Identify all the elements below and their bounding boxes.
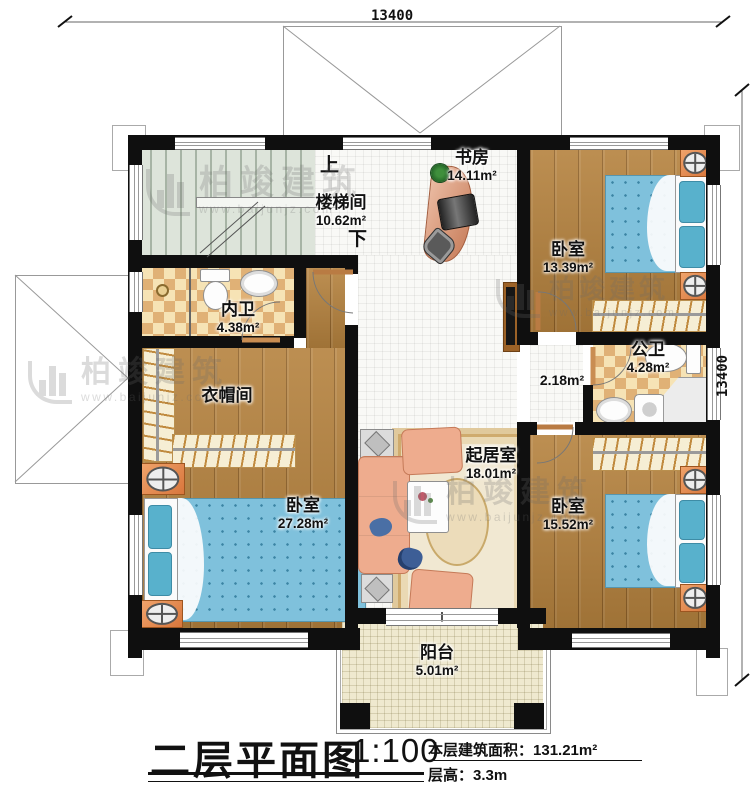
window <box>129 515 143 595</box>
closet-rack-icon <box>143 348 175 462</box>
pillow-icon <box>148 552 172 596</box>
room-area: 27.28m² <box>255 516 351 532</box>
room-name: 公卫 <box>600 340 696 360</box>
room-label-bedroom-tr: 卧室 13.39m² <box>520 240 616 275</box>
balcony-post <box>340 703 370 729</box>
wall-bedroom-tr <box>517 332 538 345</box>
room-name: 卧室 <box>255 496 351 516</box>
room-area: 2.18m² <box>524 372 600 388</box>
tv-icon <box>506 287 515 345</box>
floor-area-value: 131.21m² <box>533 742 597 759</box>
roof-gable-top <box>283 26 562 136</box>
sliding-door <box>386 608 498 626</box>
floor-height-value: 3.3m <box>473 767 507 784</box>
room-label-bedroom-left: 卧室 27.28m² <box>255 496 351 531</box>
wall-under-stairs <box>142 255 358 268</box>
sink-icon <box>240 270 278 297</box>
room-name: 卧室 <box>520 497 616 517</box>
room-label-study: 书房 14.11m² <box>424 148 520 183</box>
pillow-icon <box>679 226 705 268</box>
roof-gable-left <box>15 275 130 484</box>
sink-icon <box>596 397 632 424</box>
wall-bedroom-br <box>517 422 537 435</box>
table-decor <box>418 492 427 501</box>
room-name: 书房 <box>424 148 520 168</box>
room-name: 楼梯间 <box>293 193 389 213</box>
room-label-bedroom-br: 卧室 15.52m² <box>520 497 616 532</box>
stair-down-label: 下 <box>348 224 367 251</box>
room-area: 10.62m² <box>293 213 389 229</box>
floor-height-label: 层高： <box>428 767 473 784</box>
window <box>707 185 721 265</box>
window <box>129 165 143 240</box>
room-area: 14.11m² <box>424 168 520 184</box>
room-label-living: 起居室 18.01m² <box>443 446 539 481</box>
window <box>129 272 143 312</box>
room-label-stairwell: 楼梯间 10.62m² <box>293 193 389 228</box>
floor-height-row: 层高：3.3m <box>428 764 507 785</box>
pillow-icon <box>679 543 705 583</box>
pillow-icon <box>148 505 172 549</box>
room-area: 5.01m² <box>389 663 485 679</box>
washing-machine-icon <box>634 394 665 425</box>
room-name: 内卫 <box>190 300 286 320</box>
room-area: 4.28m² <box>600 360 696 376</box>
window <box>175 137 265 150</box>
room-area: 13.39m² <box>520 260 616 276</box>
dimension-right: 13400 <box>715 355 731 397</box>
room-label-inner-bath: 内卫 4.38m² <box>190 300 286 335</box>
room-label-small-hall: 2.18m² <box>524 372 600 388</box>
window <box>572 633 670 648</box>
window <box>343 137 431 150</box>
room-area: 15.52m² <box>520 517 616 533</box>
shower-head-icon <box>156 284 169 297</box>
title-divider <box>428 760 642 761</box>
balcony-post <box>514 703 544 729</box>
stair-up-label: 上 <box>320 150 339 177</box>
side-table-icon <box>361 574 393 603</box>
pillow-icon <box>679 500 705 540</box>
nightstand-icon <box>141 600 183 628</box>
room-label-balcony: 阳台 5.01m² <box>389 643 485 678</box>
wall-public-bath <box>583 385 593 422</box>
closet-rack-icon <box>172 434 296 468</box>
title-underline <box>148 772 424 782</box>
dimension-top: 13400 <box>371 8 413 24</box>
wall-bedroom-br <box>575 422 720 435</box>
floor-area-label: 本层建筑面积： <box>428 742 533 759</box>
window <box>570 137 668 150</box>
room-area: 18.01m² <box>443 466 539 482</box>
coffee-table-icon <box>407 481 449 533</box>
computer-monitor-icon <box>437 193 480 231</box>
side-table-icon <box>360 429 394 459</box>
wall-bedroom-left <box>345 325 358 628</box>
window <box>707 495 721 585</box>
floor-plan: 13400 13400 <box>0 0 750 786</box>
room-label-closet: 衣帽间 <box>179 386 275 406</box>
room-name: 卧室 <box>520 240 616 260</box>
floor-area-row: 本层建筑面积：131.21m² <box>428 739 597 760</box>
wall-bedroom-left <box>345 268 358 274</box>
room-floor-bedroom-corridor <box>306 268 345 348</box>
room-name: 起居室 <box>443 446 539 466</box>
plan-scale: 1:100 <box>352 732 440 770</box>
pillow-icon <box>679 181 705 223</box>
room-name: 衣帽间 <box>179 386 275 406</box>
wall-inner-bath <box>294 268 306 338</box>
room-label-public-bath: 公卫 4.28m² <box>600 340 696 375</box>
wall-inner-bath <box>142 336 294 348</box>
room-name: 阳台 <box>389 643 485 663</box>
wardrobe-icon <box>592 300 708 332</box>
nightstand-icon <box>141 463 185 495</box>
window <box>180 632 308 648</box>
room-area: 4.38m² <box>190 320 286 336</box>
